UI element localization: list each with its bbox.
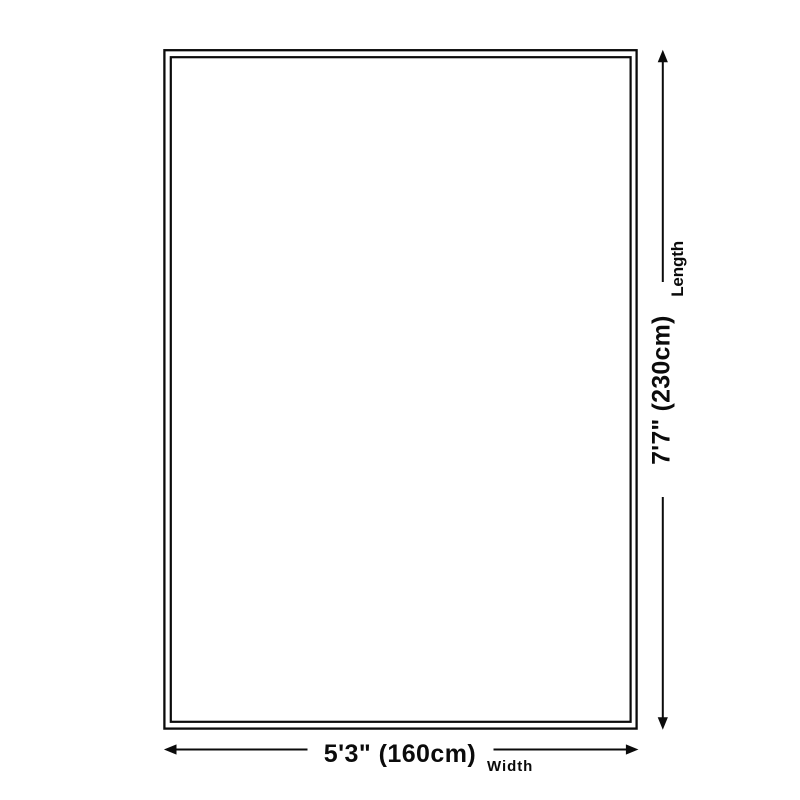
svg-text:5'3" (160cm): 5'3" (160cm)	[324, 740, 476, 768]
svg-text:7'7" (230cm): 7'7" (230cm)	[647, 315, 675, 464]
svg-text:Length: Length	[668, 241, 687, 297]
svg-text:Width: Width	[487, 758, 533, 775]
